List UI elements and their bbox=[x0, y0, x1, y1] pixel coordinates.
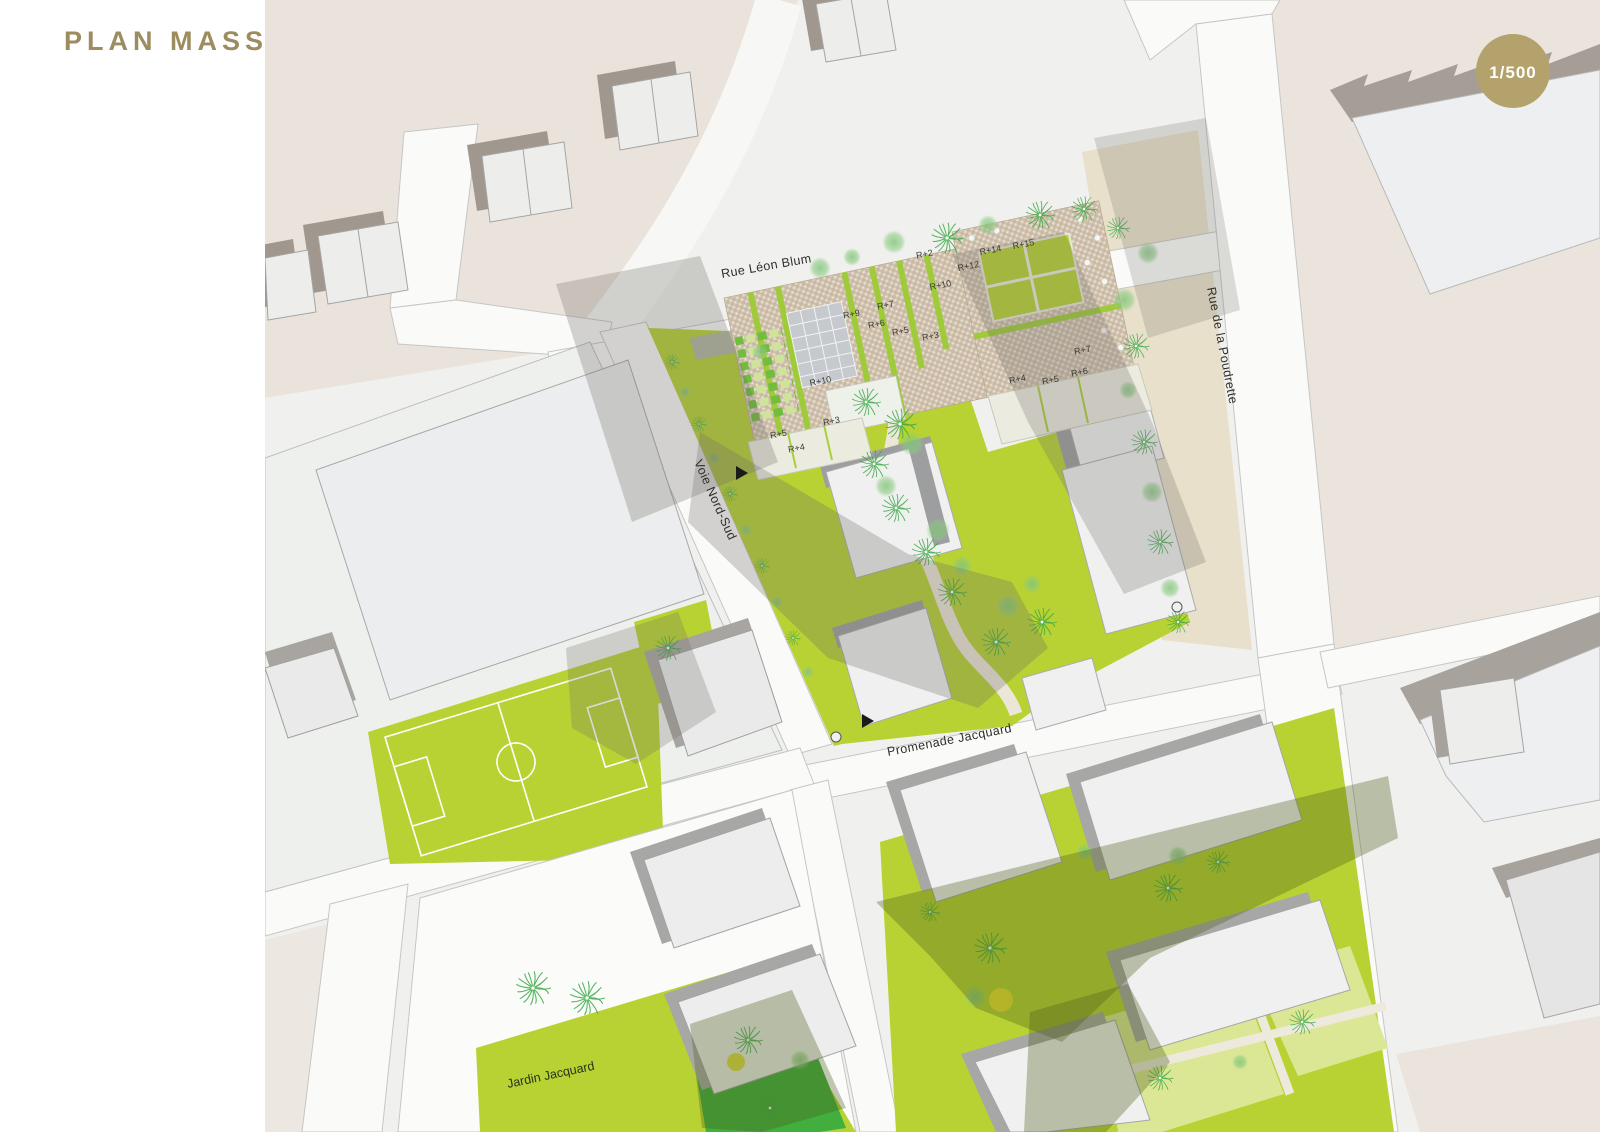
access-icon bbox=[1172, 602, 1182, 612]
site-plan-map: Rue Léon Blum Rue de la Poudrette Voie N… bbox=[0, 0, 1600, 1132]
scale-badge: 1/500 bbox=[1476, 34, 1550, 108]
scale-badge-text: 1/500 bbox=[1489, 63, 1537, 82]
access-icon bbox=[831, 732, 841, 742]
building-east-house bbox=[1440, 678, 1524, 764]
site-plan-page: PLAN MASSE bbox=[0, 0, 1600, 1132]
